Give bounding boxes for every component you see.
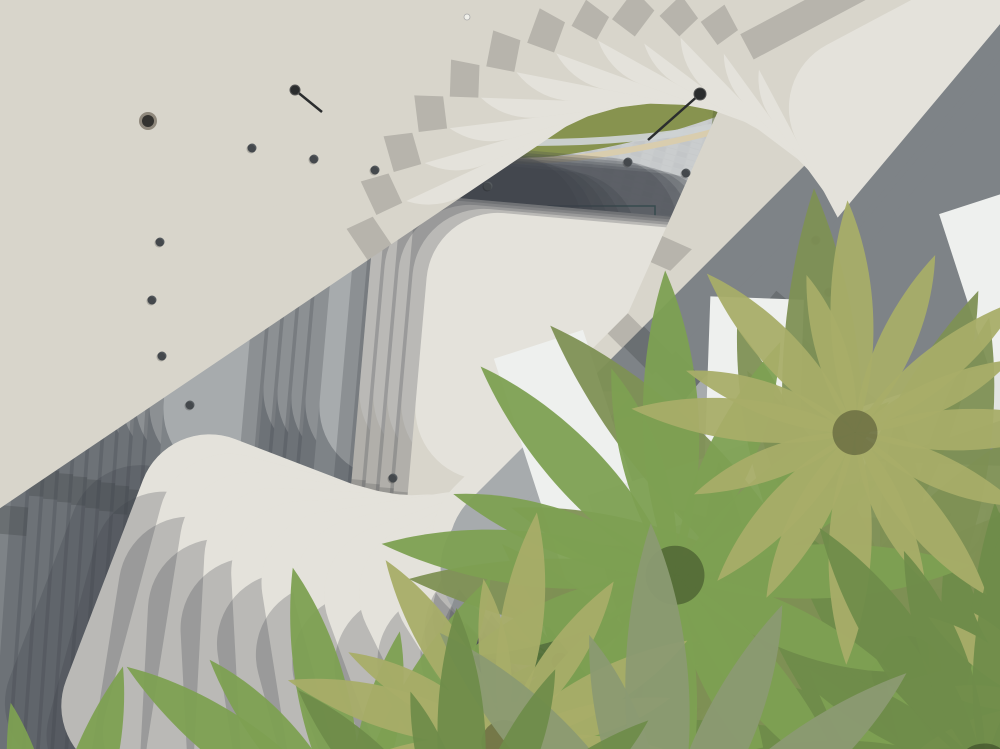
- light-bollard: [464, 14, 470, 20]
- scene-canvas: [0, 0, 1000, 749]
- fire-bowl: [139, 112, 157, 130]
- aerial-resort-pool-photo: [0, 0, 1000, 749]
